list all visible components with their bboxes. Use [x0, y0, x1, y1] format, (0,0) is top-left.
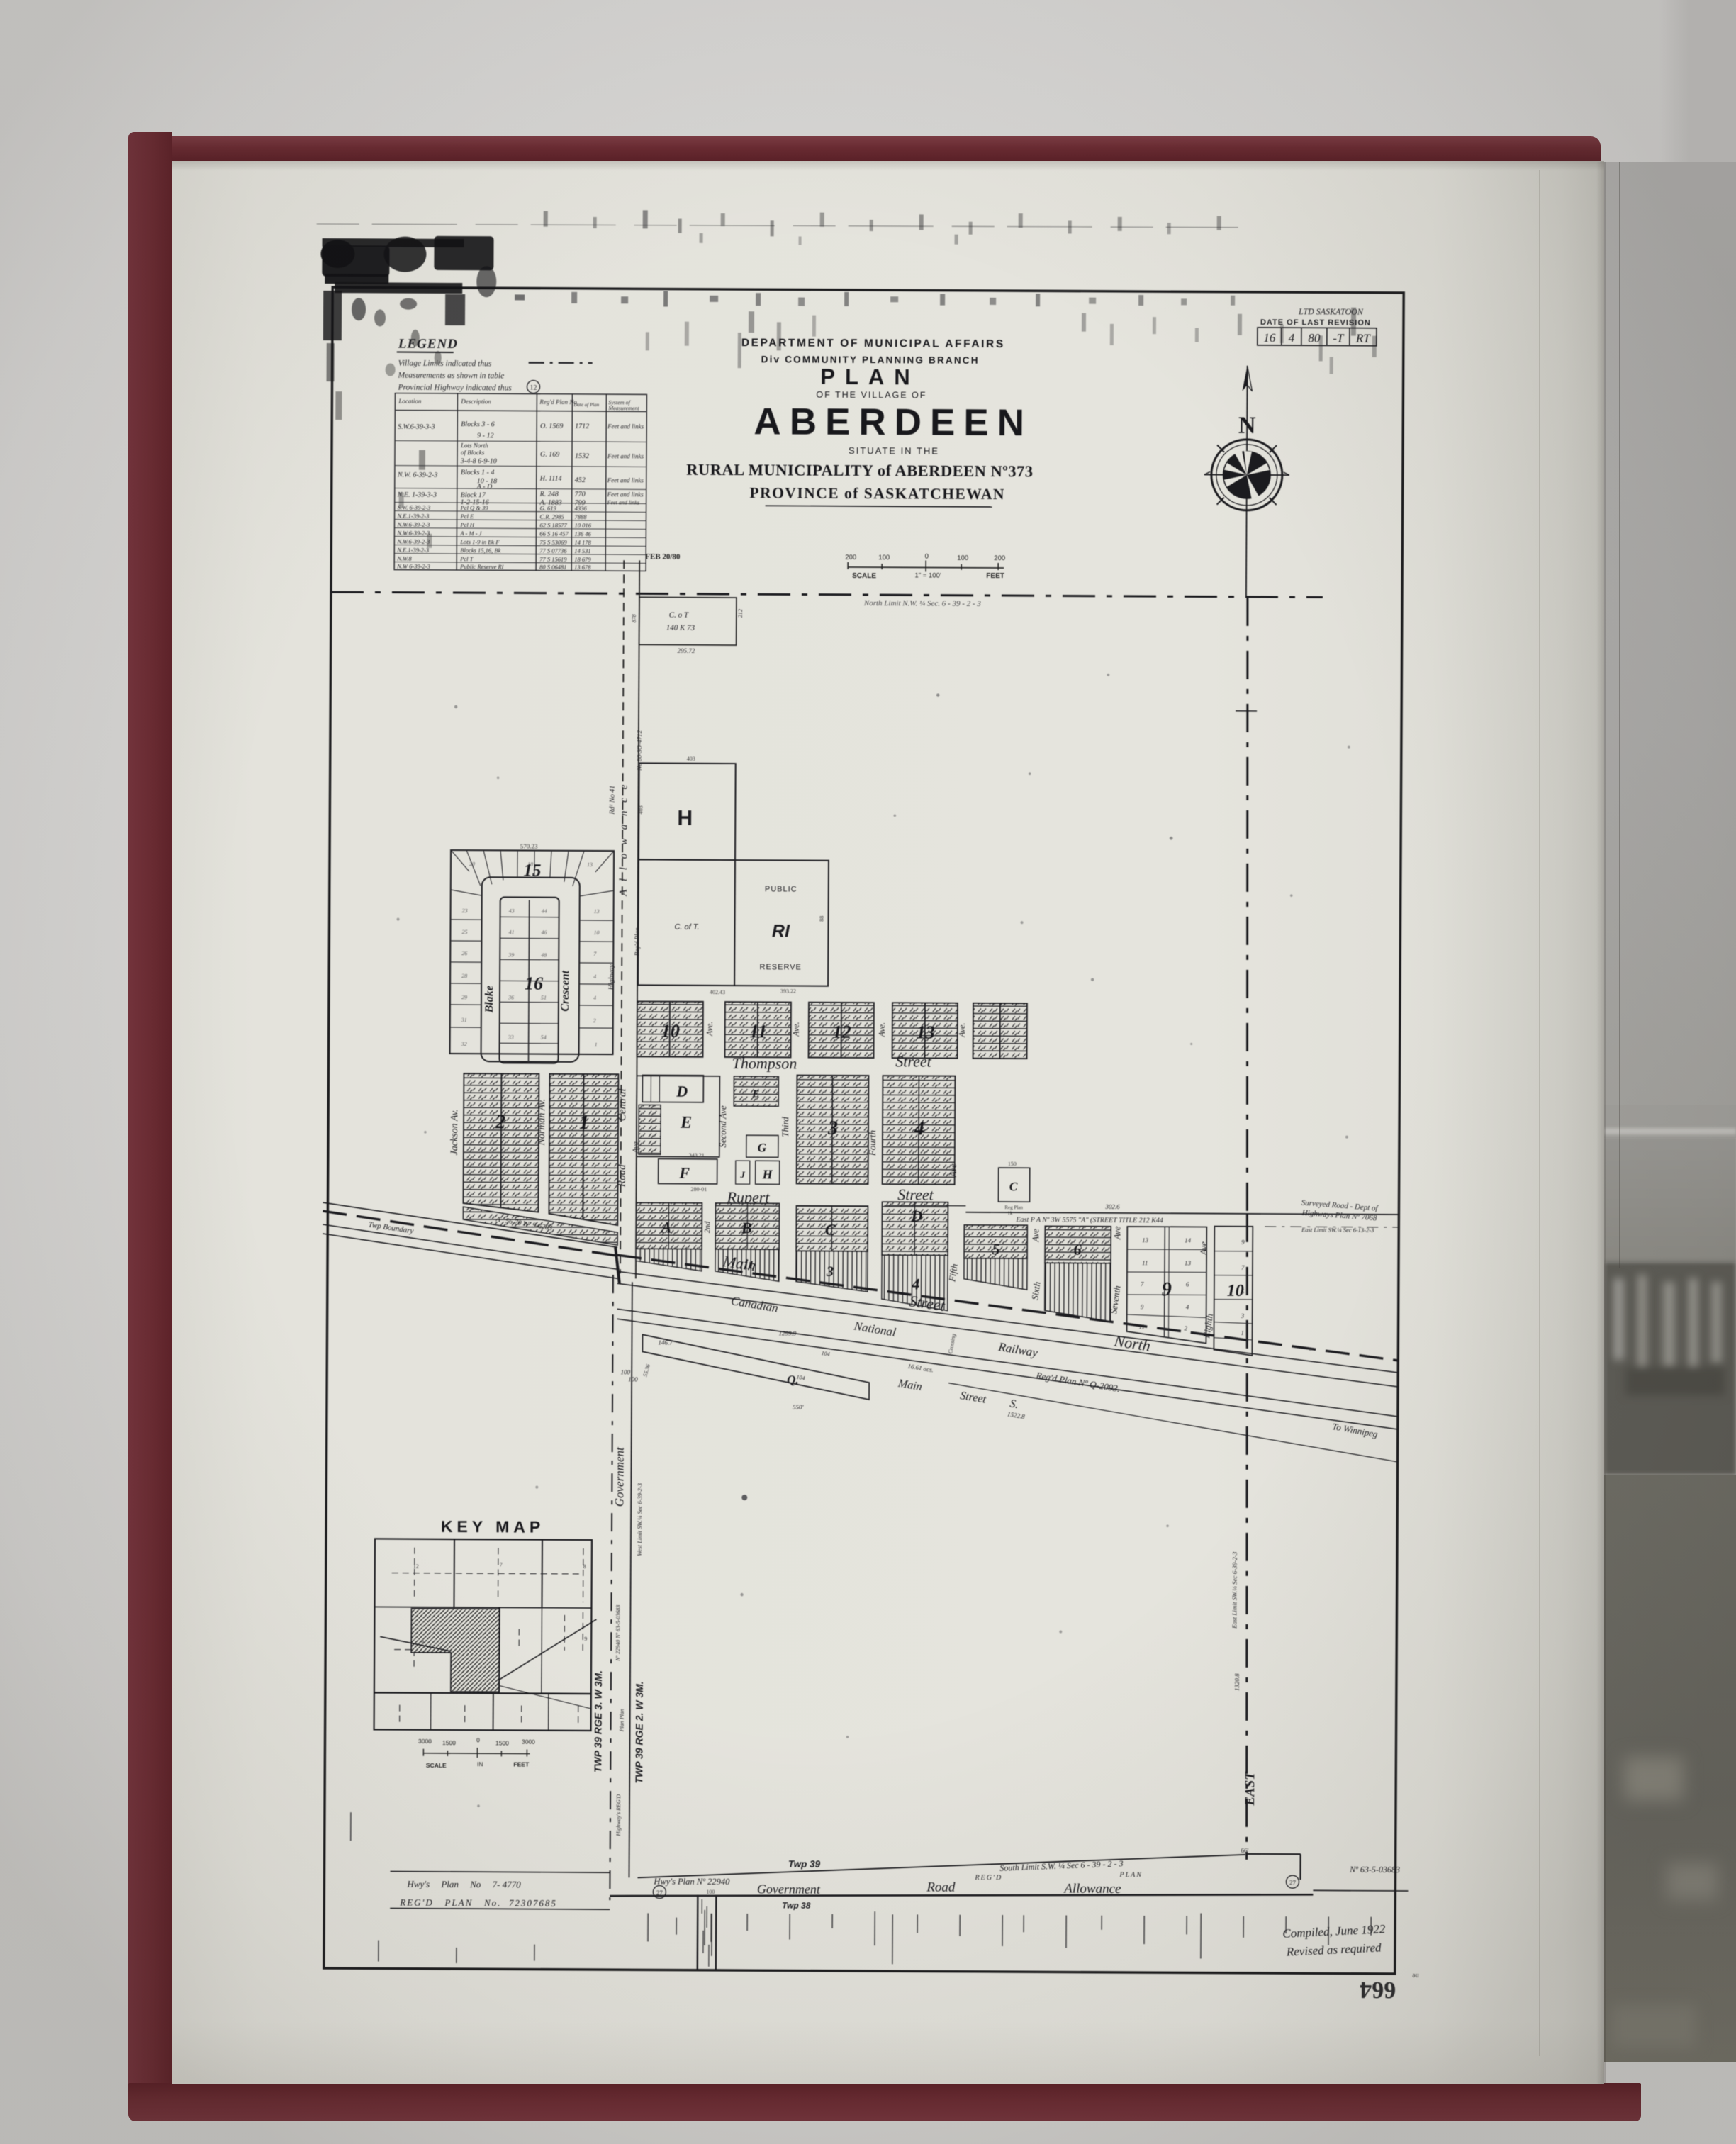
svg-text:7888: 7888 — [575, 513, 588, 520]
svg-text:100: 100 — [957, 554, 968, 562]
svg-text:26: 26 — [461, 950, 467, 956]
svg-text:Ave: Ave — [1111, 1226, 1122, 1240]
svg-text:B: B — [741, 1219, 752, 1236]
svg-text:20: 20 — [469, 861, 475, 867]
svg-text:75 S 53069: 75 S 53069 — [539, 539, 567, 546]
svg-text:N.W.6-39-2-3: N.W.6-39-2-3 — [396, 530, 430, 537]
svg-text:Pcl T: Pcl T — [459, 555, 474, 562]
svg-text:7: 7 — [500, 1561, 503, 1568]
svg-text:DEPARTMENT OF MUNICIPAL AFF: DEPARTMENT OF MUNICIPAL AFFAIRS — [741, 337, 1005, 350]
svg-text:100: 100 — [706, 1889, 715, 1895]
svg-text:280-01: 280-01 — [691, 1186, 707, 1193]
svg-text:SCALE: SCALE — [426, 1762, 447, 1769]
svg-text:14 531: 14 531 — [574, 547, 590, 554]
svg-text:LEGEND: LEGEND — [398, 337, 458, 352]
svg-text:Highway's REG'D: Highway's REG'D — [615, 1794, 622, 1837]
svg-text:D: D — [676, 1083, 688, 1100]
svg-text:13: 13 — [1142, 1236, 1149, 1244]
svg-text:14 178: 14 178 — [574, 539, 591, 546]
svg-text:3000: 3000 — [522, 1738, 535, 1746]
svg-text:9 - 12: 9 - 12 — [477, 432, 493, 440]
svg-text:Hwy's Plan Nº 22940: Hwy's Plan Nº 22940 — [653, 1876, 730, 1887]
svg-text:G. 619: G. 619 — [540, 505, 557, 512]
svg-text:Jackson Av.: Jackson Av. — [449, 1110, 460, 1156]
svg-text:13: 13 — [917, 1022, 935, 1042]
svg-text:N.W.6-39-2-3: N.W.6-39-2-3 — [396, 538, 430, 545]
svg-text:10: 10 — [661, 1021, 680, 1042]
svg-text:PLAN: PLAN — [1119, 1871, 1143, 1879]
svg-text:Plan Plan: Plan Plan — [619, 1709, 625, 1732]
svg-text:Blocks 15,16, Bk: Blocks 15,16, Bk — [460, 547, 500, 554]
svg-text:4: 4 — [1186, 1303, 1189, 1310]
svg-text:27: 27 — [656, 1889, 663, 1897]
svg-text:Feet and links: Feet and links — [607, 452, 644, 459]
svg-text:Pcl E: Pcl E — [460, 513, 475, 520]
svg-text:S.: S. — [1009, 1397, 1019, 1411]
svg-text:Twp 38: Twp 38 — [782, 1900, 811, 1910]
svg-text:N.W. 6-39-2-3: N.W. 6-39-2-3 — [397, 471, 438, 479]
svg-text:Public Reserve RI: Public Reserve RI — [459, 563, 505, 570]
svg-text:25: 25 — [461, 929, 467, 935]
svg-text:East P A Nº 3W 5575 ": East P A Nº 3W 5575 "A" (STREET TITLE 21… — [1015, 1216, 1163, 1224]
svg-text:OF THE VILLAGE OF: OF THE VILLAGE OF — [816, 390, 926, 401]
svg-text:Canadian: Canadian — [730, 1294, 779, 1315]
svg-text:C: C — [825, 1221, 836, 1239]
svg-text:2: 2 — [495, 1111, 505, 1133]
svg-text:7: 7 — [1241, 1264, 1245, 1271]
svg-text:3000: 3000 — [418, 1738, 432, 1745]
svg-text:REG'D: REG'D — [974, 1874, 1002, 1882]
svg-text:13 678: 13 678 — [574, 564, 591, 571]
svg-text:3: 3 — [827, 1117, 838, 1139]
svg-text:O. 1569: O. 1569 — [540, 423, 563, 430]
svg-text:TWP 39 RGE 3. W 3M.: TWP 39 RGE 3. W 3M. — [592, 1670, 604, 1772]
svg-text:F: F — [678, 1164, 690, 1182]
svg-text:DATE OF LAST REVISION: DATE OF LAST REVISION — [1260, 318, 1371, 328]
svg-text:9: 9 — [584, 1636, 587, 1642]
svg-text:Ave: Ave — [1030, 1229, 1041, 1243]
svg-text:7: 7 — [1141, 1280, 1144, 1288]
svg-text:32: 32 — [461, 1041, 467, 1047]
svg-text:G: G — [758, 1141, 767, 1154]
svg-text:150: 150 — [1008, 1161, 1017, 1167]
svg-text:Crescent: Crescent — [559, 970, 571, 1011]
svg-text:4: 4 — [593, 995, 596, 1001]
svg-text:Location: Location — [398, 398, 422, 405]
svg-text:ne: ne — [1412, 1972, 1419, 1980]
svg-text:16.61 acs.: 16.61 acs. — [907, 1363, 934, 1374]
svg-text:C. of T.: C. of T. — [674, 923, 699, 932]
svg-text:55.36: 55.36 — [642, 1363, 651, 1378]
svg-text:13: 13 — [587, 861, 593, 868]
svg-text:100: 100 — [628, 1375, 638, 1383]
svg-text:Reg'd Plan Nº Q-2093.: Reg'd Plan Nº Q-2093. — [1035, 1370, 1121, 1394]
svg-text:46: 46 — [541, 929, 547, 936]
svg-text:4336: 4336 — [575, 505, 588, 512]
svg-text:North Limit N.W. ¼ Sec. 6: North Limit N.W. ¼ Sec. 6 - 39 - 2 - 3 — [863, 599, 981, 608]
svg-text:11: 11 — [1139, 1323, 1145, 1330]
svg-text:77 S 15619: 77 S 15619 — [539, 556, 567, 563]
svg-text:51: 51 — [541, 995, 547, 1001]
svg-text:43: 43 — [509, 908, 515, 914]
svg-text:FEB 20/80: FEB 20/80 — [645, 552, 681, 561]
svg-text:Date of Plan: Date of Plan — [573, 402, 599, 408]
svg-text:1299.9: 1299.9 — [778, 1329, 796, 1336]
svg-text:1" = 100': 1" = 100' — [914, 571, 941, 579]
svg-text:295.72: 295.72 — [678, 647, 695, 654]
svg-text:Nº 63-5-03683: Nº 63-5-03683 — [1349, 1865, 1400, 1875]
svg-text:of Blocks: of Blocks — [461, 449, 485, 456]
svg-text:14: 14 — [1185, 1236, 1192, 1244]
svg-text:1522.8: 1522.8 — [1007, 1410, 1026, 1420]
svg-text:ABERDEEN: ABERDEEN — [754, 401, 1033, 444]
svg-text:3: 3 — [826, 1264, 834, 1280]
svg-text:0: 0 — [476, 1736, 480, 1743]
svg-text:104: 104 — [821, 1350, 830, 1358]
svg-text:West Limit SW.¼ Sec 6-39-2-3: West Limit SW.¼ Sec 6-39-2-3 — [636, 1483, 644, 1556]
svg-text:54: 54 — [541, 1034, 547, 1041]
svg-text:11: 11 — [1142, 1259, 1148, 1266]
svg-text:Street: Street — [895, 1052, 932, 1070]
svg-text:N.W 6-39-2-3: N.W 6-39-2-3 — [396, 563, 430, 570]
svg-text:C. o T: C. o T — [669, 611, 689, 620]
svg-text:100: 100 — [620, 1368, 630, 1375]
svg-text:Fifth: Fifth — [946, 1263, 960, 1283]
svg-text:REG'D PLAN No. 72307685: REG'D PLAN No. 72307685 — [399, 1897, 557, 1909]
svg-text:770: 770 — [575, 491, 586, 498]
svg-text:Second Ave: Second Ave — [717, 1105, 728, 1148]
svg-text:1532: 1532 — [575, 452, 589, 460]
svg-text:44: 44 — [542, 908, 547, 915]
svg-text:Compiled, June 1922: Compiled, June 1922 — [1282, 1922, 1386, 1941]
svg-text:S.W.6-39-3-3: S.W.6-39-3-3 — [398, 423, 435, 431]
svg-text:IN: IN — [477, 1760, 483, 1768]
svg-text:Ave: Ave — [1198, 1241, 1209, 1256]
svg-text:13: 13 — [1185, 1259, 1192, 1266]
svg-text:Q.: Q. — [787, 1373, 799, 1386]
svg-text:E: E — [751, 1088, 759, 1100]
svg-text:36: 36 — [508, 994, 514, 1000]
svg-text:48: 48 — [541, 952, 547, 959]
svg-text:E: E — [680, 1114, 692, 1132]
svg-text:G. 169: G. 169 — [540, 451, 559, 459]
svg-text:Main: Main — [897, 1378, 923, 1393]
svg-text:S.W. 6-39-2-3: S.W. 6-39-2-3 — [398, 504, 431, 511]
svg-text:Railway: Railway — [997, 1340, 1038, 1360]
svg-text:3-4-8 6-9-10: 3-4-8 6-9-10 — [460, 457, 497, 465]
svg-text:664: 664 — [1360, 1977, 1396, 2003]
svg-text:Twp 39: Twp 39 — [788, 1858, 821, 1869]
svg-text:39: 39 — [508, 951, 514, 958]
svg-text:33: 33 — [508, 1034, 514, 1040]
svg-text:Reg Plan: Reg Plan — [1004, 1205, 1023, 1210]
svg-text:146.7: 146.7 — [658, 1339, 673, 1346]
svg-text:KEY MAP: KEY MAP — [441, 1517, 545, 1536]
svg-text:28: 28 — [461, 973, 467, 979]
svg-text:136 46: 136 46 — [574, 530, 591, 537]
svg-text:88: 88 — [819, 916, 825, 922]
svg-text:N.E.1-39-2-3: N.E.1-39-2-3 — [397, 513, 430, 520]
svg-text:10 016: 10 016 — [574, 522, 591, 529]
svg-text:12: 12 — [530, 384, 537, 392]
svg-text:Nº 22940 Nº 63-5-03683: Nº 22940 Nº 63-5-03683 — [615, 1605, 621, 1662]
svg-text:212: 212 — [737, 609, 744, 618]
svg-text:National: National — [853, 1319, 897, 1339]
svg-text:66': 66' — [1241, 1847, 1249, 1854]
svg-text:6: 6 — [1074, 1241, 1082, 1258]
svg-text:North: North — [1112, 1331, 1151, 1354]
svg-text:41: 41 — [508, 929, 514, 935]
svg-text:Street: Street — [959, 1390, 987, 1406]
svg-text:2nd: 2nd — [703, 1221, 712, 1233]
svg-text:D: D — [910, 1207, 922, 1224]
svg-text:EAST: EAST — [1243, 1771, 1258, 1807]
svg-text:200: 200 — [845, 554, 856, 562]
svg-text:4: 4 — [914, 1117, 924, 1139]
svg-text:Norman Av.: Norman Av. — [537, 1099, 547, 1146]
svg-text:16: 16 — [1263, 331, 1276, 345]
svg-text:Village Limits indicated thus: Village Limits indicated thus — [398, 359, 492, 369]
svg-text:Thompson: Thompson — [732, 1054, 797, 1072]
svg-text:Hwy's Plan No 7- 4: Hwy's Plan No 7- 4770 — [406, 1879, 521, 1890]
svg-text:N.W.8: N.W.8 — [396, 555, 412, 562]
svg-text:A - M - J: A - M - J — [459, 530, 482, 537]
svg-text:Allowance: Allowance — [1063, 1882, 1121, 1897]
svg-text:FEET: FEET — [513, 1760, 530, 1768]
svg-text:C: C — [1009, 1180, 1018, 1193]
svg-text:1500: 1500 — [442, 1739, 456, 1746]
svg-text:RURAL MUNICIPALITY of ABERDEEN: RURAL MUNICIPALITY of ABERDEEN Nº373 — [686, 461, 1033, 481]
svg-text:7: 7 — [593, 951, 597, 957]
svg-text:0: 0 — [925, 552, 929, 560]
svg-text:Ave.: Ave. — [877, 1022, 887, 1037]
svg-text:Revised as required: Revised as required — [1285, 1941, 1382, 1958]
svg-text:11: 11 — [749, 1021, 767, 1042]
svg-text:393.22: 393.22 — [780, 988, 796, 994]
svg-text:5: 5 — [992, 1240, 1000, 1258]
svg-text:N.W.6-39-2-3: N.W.6-39-2-3 — [396, 521, 430, 528]
svg-text:SITUATE IN THE: SITUATE IN THE — [849, 445, 939, 457]
svg-text:13: 13 — [594, 908, 600, 915]
svg-text:Highway: Highway — [607, 964, 615, 991]
svg-text:PUBLIC: PUBLIC — [765, 885, 797, 893]
svg-text:N: N — [1238, 413, 1256, 439]
svg-text:402.43: 402.43 — [710, 989, 725, 995]
svg-text:Road: Road — [926, 1880, 956, 1894]
svg-text:J: J — [739, 1169, 745, 1180]
svg-text:Crossing: Crossing — [947, 1333, 957, 1354]
svg-text:FEET: FEET — [986, 572, 1004, 580]
svg-text:Feet and links: Feet and links — [607, 491, 644, 498]
svg-text:Rd¹ No 41: Rd¹ No 41 — [608, 786, 616, 815]
svg-text:PLAN: PLAN — [820, 364, 920, 390]
svg-text:1320.8: 1320.8 — [1233, 1673, 1241, 1691]
svg-text:H: H — [762, 1167, 773, 1181]
svg-text:R. 248: R. 248 — [539, 491, 559, 498]
svg-text:A l l o w a n c e: A l l o w a n c e — [618, 782, 630, 897]
svg-text:Ave: Ave — [948, 1163, 958, 1178]
svg-text:18 679: 18 679 — [574, 556, 591, 563]
svg-text:East Limit SW.¼ Sec 6-13-2-3: East Limit SW.¼ Sec 6-13-2-3 — [1301, 1226, 1374, 1234]
svg-text:29: 29 — [461, 994, 467, 1000]
svg-text:403: 403 — [637, 805, 644, 814]
svg-text:Blake: Blake — [483, 986, 495, 1013]
svg-text:9: 9 — [1141, 1303, 1144, 1310]
svg-text:5: 5 — [1241, 1288, 1245, 1295]
svg-text:Description: Description — [460, 398, 491, 405]
svg-text:PROVINCE of SASKATCHEWAN: PROVINCE of SASKATCHEWAN — [749, 484, 1005, 503]
svg-text:Provincial Highway indicated t: Provincial Highway indicated thus — [397, 384, 512, 393]
svg-text:Third: Third — [780, 1117, 790, 1137]
svg-text:16: 16 — [525, 973, 543, 994]
svg-text:452: 452 — [575, 476, 586, 484]
svg-text:Pcl Q & 39: Pcl Q & 39 — [460, 504, 489, 511]
svg-text:Government: Government — [757, 1882, 821, 1896]
svg-text:N.E. 1-39-3-3: N.E. 1-39-3-3 — [397, 491, 437, 499]
svg-text:Government: Government — [612, 1446, 626, 1507]
svg-text:Ave.: Ave. — [957, 1023, 967, 1038]
svg-text:RT: RT — [1355, 332, 1371, 345]
svg-text:550': 550' — [793, 1403, 805, 1410]
svg-text:343.21: 343.21 — [689, 1152, 705, 1158]
svg-text:570.23: 570.23 — [520, 842, 538, 849]
svg-text:12: 12 — [413, 1563, 419, 1570]
svg-text:140 K 73: 140 K 73 — [666, 624, 695, 632]
svg-text:1: 1 — [579, 1112, 589, 1134]
svg-text:1712: 1712 — [575, 423, 589, 430]
svg-text:N.E.1-39-2-3: N.E.1-39-2-3 — [396, 547, 429, 554]
svg-text:23: 23 — [462, 908, 468, 914]
svg-text:Reg'd Plan: Reg'd Plan — [633, 927, 640, 956]
svg-text:-T: -T — [1333, 331, 1345, 345]
svg-text:1: 1 — [595, 1042, 598, 1048]
svg-text:East Limit SW.¼ Sec 6-39-2-3: East Limit SW.¼ Sec 6-39-2-3 — [1231, 1551, 1238, 1629]
svg-text:Pcl H: Pcl H — [459, 521, 475, 528]
svg-text:Measurement: Measurement — [607, 405, 639, 411]
svg-text:SCALE: SCALE — [852, 572, 876, 580]
svg-text:Ave.: Ave. — [705, 1022, 715, 1037]
svg-text:6: 6 — [1186, 1280, 1189, 1288]
svg-text:77 S 07736: 77 S 07736 — [539, 547, 567, 554]
svg-text:H: H — [677, 807, 693, 830]
svg-text:4: 4 — [911, 1275, 919, 1292]
svg-text:27: 27 — [1289, 1879, 1297, 1886]
svg-text:H. 1114: H. 1114 — [539, 475, 562, 483]
svg-text:8: 8 — [583, 1563, 586, 1570]
svg-text:4: 4 — [593, 973, 596, 980]
svg-text:62 S 18577: 62 S 18577 — [539, 522, 567, 529]
svg-text:80 S 06481: 80 S 06481 — [539, 564, 566, 571]
svg-text:Fourth: Fourth — [867, 1130, 878, 1156]
svg-text:A: A — [660, 1219, 672, 1236]
svg-text:C.R. 2985: C.R. 2985 — [540, 513, 564, 520]
svg-text:1k: 1k — [1007, 1210, 1013, 1216]
svg-text:1: 1 — [1241, 1329, 1244, 1336]
svg-text:RI: RI — [772, 921, 790, 941]
svg-text:Feet and links: Feet and links — [607, 423, 644, 430]
svg-text:15: 15 — [523, 861, 541, 880]
svg-text:Blocks 1 - 4: Blocks 1 - 4 — [461, 469, 495, 476]
svg-text:1500: 1500 — [495, 1739, 509, 1746]
svg-text:302.6: 302.6 — [1104, 1203, 1120, 1210]
svg-text:Feet and links: Feet and links — [607, 476, 644, 484]
svg-text:2: 2 — [593, 1017, 596, 1024]
svg-text:12: 12 — [833, 1022, 851, 1042]
svg-text:Lots North: Lots North — [460, 442, 488, 449]
svg-text:878: 878 — [631, 614, 637, 622]
svg-text:RESERVE: RESERVE — [759, 963, 801, 971]
svg-text:Reg'd Plan No: Reg'd Plan No — [539, 398, 577, 406]
svg-text:Lots 1-9 in Bk F: Lots 1-9 in Bk F — [459, 538, 500, 545]
svg-text:South Limit S.W. ¼ Sec: South Limit S.W. ¼ Sec 6 - 39 - 2 - 3 — [999, 1858, 1124, 1873]
svg-text:200: 200 — [994, 554, 1005, 562]
svg-text:Measurements as shown in table: Measurements as shown in table — [398, 372, 505, 381]
svg-text:Blocks 3 - 6: Blocks 3 - 6 — [461, 420, 495, 428]
svg-text:A - D: A - D — [476, 483, 493, 491]
svg-text:4: 4 — [1289, 331, 1295, 345]
svg-text:9: 9 — [1162, 1278, 1172, 1300]
svg-text:3: 3 — [1241, 1312, 1245, 1319]
svg-text:LTD SASKATOON: LTD SASKATOON — [1298, 306, 1364, 316]
svg-text:a: a — [421, 1638, 424, 1644]
svg-text:10: 10 — [593, 929, 599, 936]
svg-text:9: 9 — [1241, 1239, 1245, 1246]
svg-text:Feet and links: Feet and links — [607, 499, 639, 506]
svg-text:31: 31 — [461, 1017, 467, 1023]
svg-text:403: 403 — [687, 756, 695, 762]
svg-text:Street: Street — [897, 1185, 934, 1203]
svg-text:Sixth: Sixth — [1029, 1281, 1043, 1301]
svg-text:Ave.: Ave. — [791, 1022, 801, 1037]
svg-text:66 S 16 457: 66 S 16 457 — [539, 530, 569, 537]
svg-text:2: 2 — [1185, 1324, 1188, 1331]
svg-text:80: 80 — [1308, 331, 1321, 345]
svg-text:TWP 39 RGE 2. W 3M.: TWP 39 RGE 2. W 3M. — [633, 1681, 645, 1783]
svg-text:100: 100 — [878, 554, 890, 562]
